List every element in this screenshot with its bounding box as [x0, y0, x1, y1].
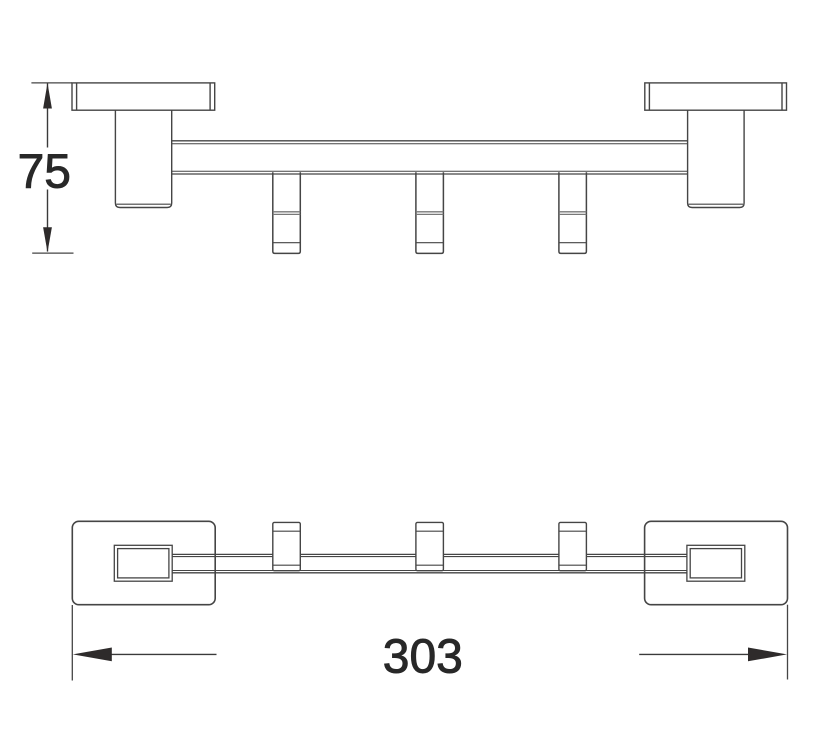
svg-text:75: 75: [18, 145, 71, 198]
svg-text:303: 303: [383, 631, 463, 684]
